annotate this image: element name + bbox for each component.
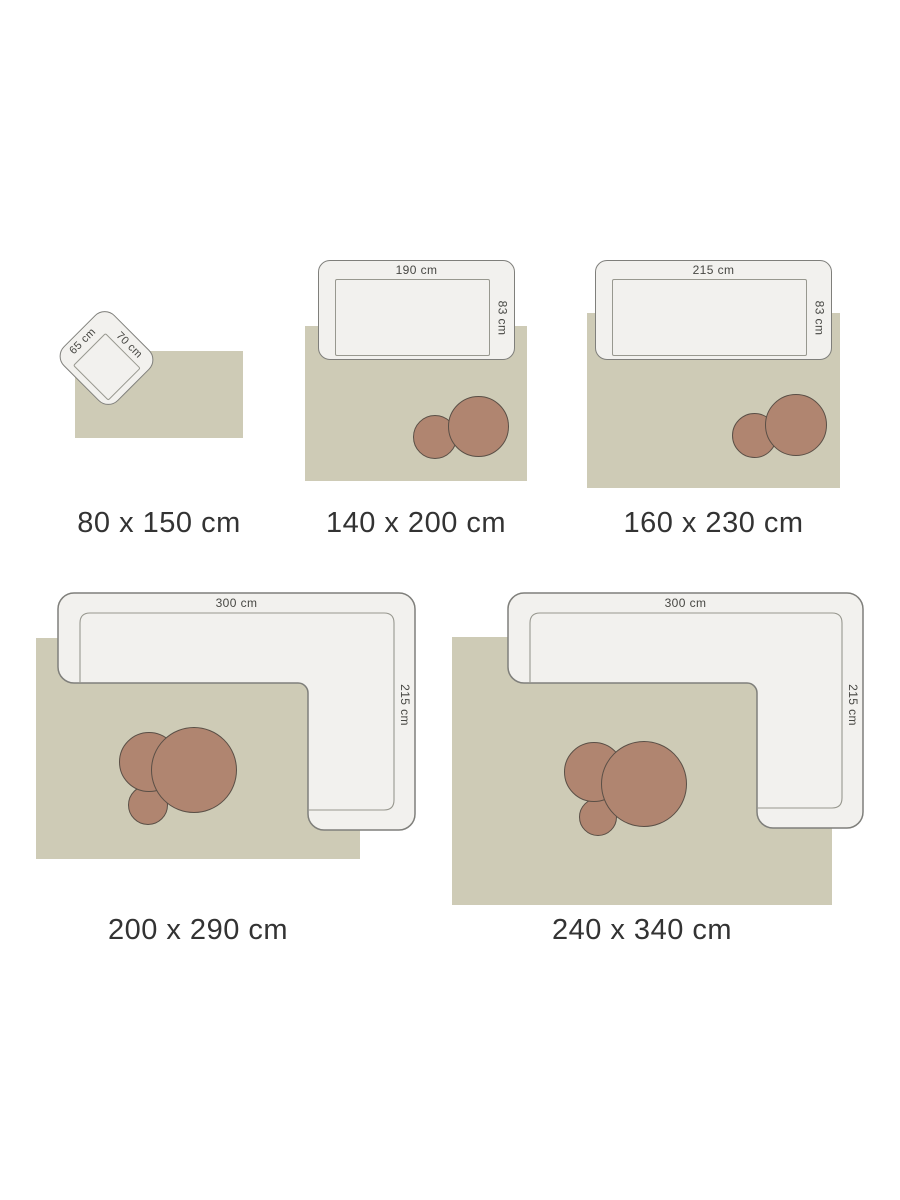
corner-sofa-depth-label: 215 cm xyxy=(842,655,863,755)
sofa-width-label: 190 cm xyxy=(319,262,514,278)
rug-size-caption: 240 x 340 cm xyxy=(452,915,832,945)
corner-sofa-width-label: 300 cm xyxy=(508,595,863,611)
rug-size-caption: 200 x 290 cm xyxy=(36,915,360,945)
sofa-depth-label: 83 cm xyxy=(490,279,514,356)
sofa-top-view: 190 cm 83 cm xyxy=(318,260,515,360)
rug-size-caption: 80 x 150 cm xyxy=(75,508,243,538)
sofa-depth-label: 83 cm xyxy=(807,279,831,356)
coffee-table-large xyxy=(151,727,237,813)
sofa-seat-outline xyxy=(612,279,807,356)
sofa-seat-outline xyxy=(335,279,490,356)
sofa-width-label: 215 cm xyxy=(596,262,831,278)
corner-sofa-top-view xyxy=(58,593,415,830)
rug-size-caption: 160 x 230 cm xyxy=(587,508,840,538)
coffee-table-large xyxy=(765,394,827,456)
corner-sofa-depth-label: 215 cm xyxy=(394,655,415,755)
corner-sofa-width-label: 300 cm xyxy=(58,595,415,611)
sofa-top-view: 215 cm 83 cm xyxy=(595,260,832,360)
coffee-table-large xyxy=(601,741,687,827)
coffee-table-large xyxy=(448,396,509,457)
rug-size-caption: 140 x 200 cm xyxy=(305,508,527,538)
rug-size-guide-diagram: 70 cm 65 cm 80 x 150 cm 190 cm 83 cm 140… xyxy=(0,0,900,1200)
corner-sofa-outline xyxy=(58,593,415,830)
